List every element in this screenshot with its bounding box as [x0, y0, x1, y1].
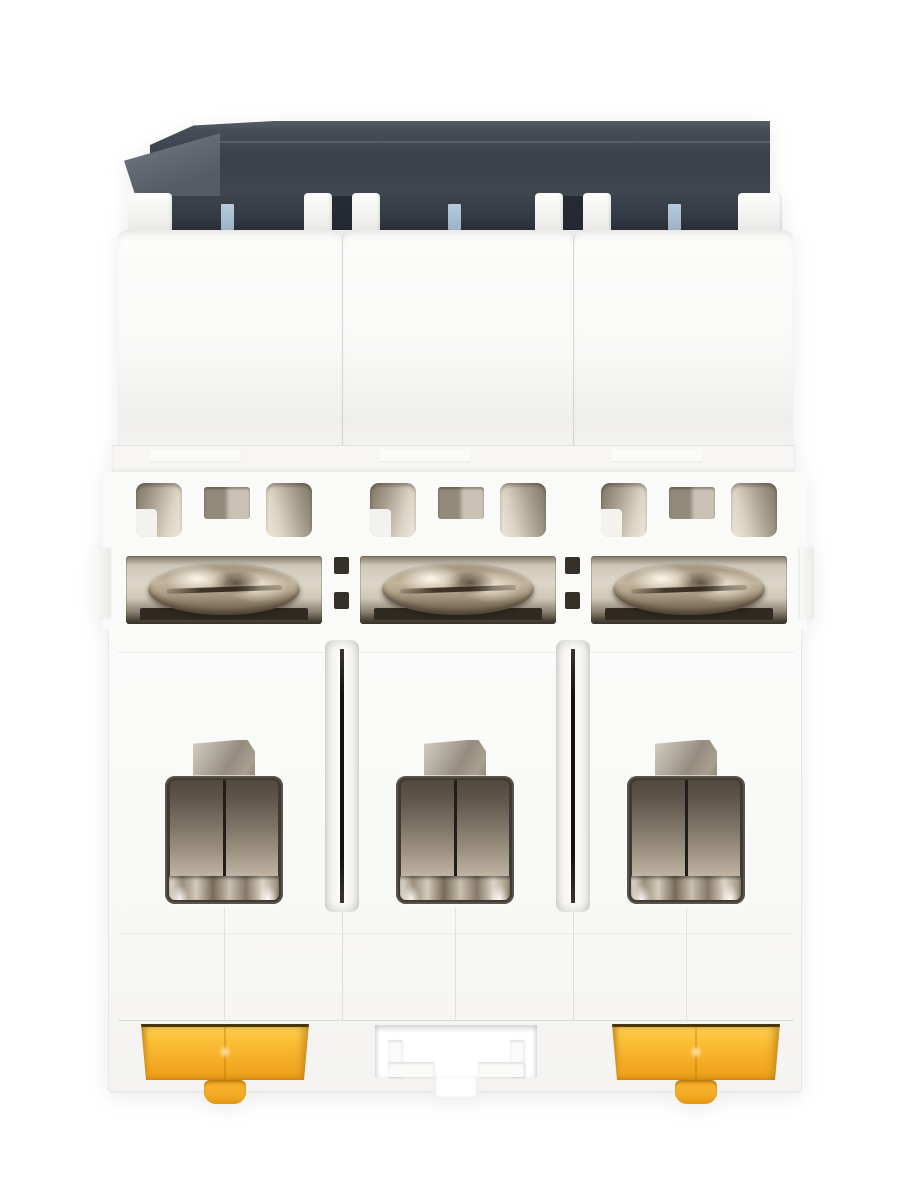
inter-pole-slot: [325, 640, 359, 912]
mold-line: [118, 933, 794, 934]
seam-hole: [334, 557, 349, 574]
clip-recess-edge: [118, 1020, 794, 1021]
housing-post: [304, 193, 332, 232]
clamp-divider: [454, 780, 457, 880]
seam-hole: [334, 592, 349, 609]
screw-recess: [126, 556, 322, 624]
terminal-metal-tab: [193, 740, 255, 778]
circuit-breaker: [0, 0, 900, 1200]
housing-post: [583, 193, 611, 232]
clamp-metal-base: [631, 876, 741, 900]
clamp-plate: [225, 780, 278, 878]
vent-opening: [370, 483, 416, 537]
clamp-plate: [401, 780, 454, 878]
vent-opening: [136, 483, 182, 537]
mold-line: [118, 652, 794, 653]
housing-post: [738, 193, 782, 232]
housing-post: [535, 193, 563, 232]
terminal-clamp-cavity: [396, 776, 514, 904]
product-photo: [0, 0, 900, 1200]
vent-opening: [601, 483, 647, 537]
terminal-screw-head: [613, 563, 765, 615]
vent-square: [669, 487, 715, 519]
din-rail-clip-tab: [675, 1080, 717, 1104]
clamp-plate: [687, 780, 740, 878]
screw-recess: [591, 556, 787, 624]
cutout-center-gap: [434, 1077, 478, 1097]
pole-module-2: [342, 230, 574, 445]
terminal-screw-head: [382, 563, 534, 615]
vent-opening: [500, 483, 546, 537]
clamp-plate: [632, 780, 685, 878]
housing-post: [352, 193, 380, 232]
shelf-step: [150, 449, 240, 461]
seam-hole: [565, 557, 580, 574]
center-mold-seam: [455, 908, 456, 1020]
pole-seam: [573, 912, 574, 1020]
shelf-step: [380, 449, 470, 461]
pole-module-3: [573, 230, 793, 445]
terminal-clamp-cavity: [165, 776, 283, 904]
vent-square: [438, 487, 484, 519]
clamp-divider: [223, 780, 226, 880]
clamp-metal-base: [400, 876, 510, 900]
label-window: [668, 204, 681, 230]
clamp-plate: [456, 780, 509, 878]
terminal-metal-tab: [655, 740, 717, 778]
vent-opening: [266, 483, 312, 537]
center-mold-seam: [224, 908, 225, 1020]
label-window: [221, 204, 234, 230]
terminal-clamp-cavity: [627, 776, 745, 904]
din-rail-clip-left: [141, 1024, 309, 1080]
pole-seam: [342, 912, 343, 1020]
terminal-metal-tab: [424, 740, 486, 778]
top-cap-slab: [150, 121, 770, 196]
seam-hole: [565, 592, 580, 609]
vent-square: [204, 487, 250, 519]
pole-module-1: [118, 230, 342, 445]
inter-pole-slot: [556, 640, 590, 912]
terminal-screw-head: [148, 563, 300, 615]
housing-post: [128, 193, 172, 232]
clamp-divider: [685, 780, 688, 880]
center-mold-seam: [686, 908, 687, 1020]
label-window: [448, 204, 461, 230]
slot-slit: [340, 649, 344, 903]
side-tab-right: [800, 548, 814, 618]
side-tab-left: [96, 548, 110, 618]
vent-opening: [731, 483, 777, 537]
shelf-step: [612, 449, 702, 461]
din-rail-clip-right: [612, 1024, 780, 1080]
clamp-metal-base: [169, 876, 279, 900]
screw-recess: [360, 556, 556, 624]
clamp-plate: [170, 780, 223, 878]
cutout-step: [478, 1062, 524, 1077]
cutout-step: [388, 1062, 434, 1077]
din-rail-clip-tab: [204, 1080, 246, 1104]
slot-slit: [571, 649, 575, 903]
